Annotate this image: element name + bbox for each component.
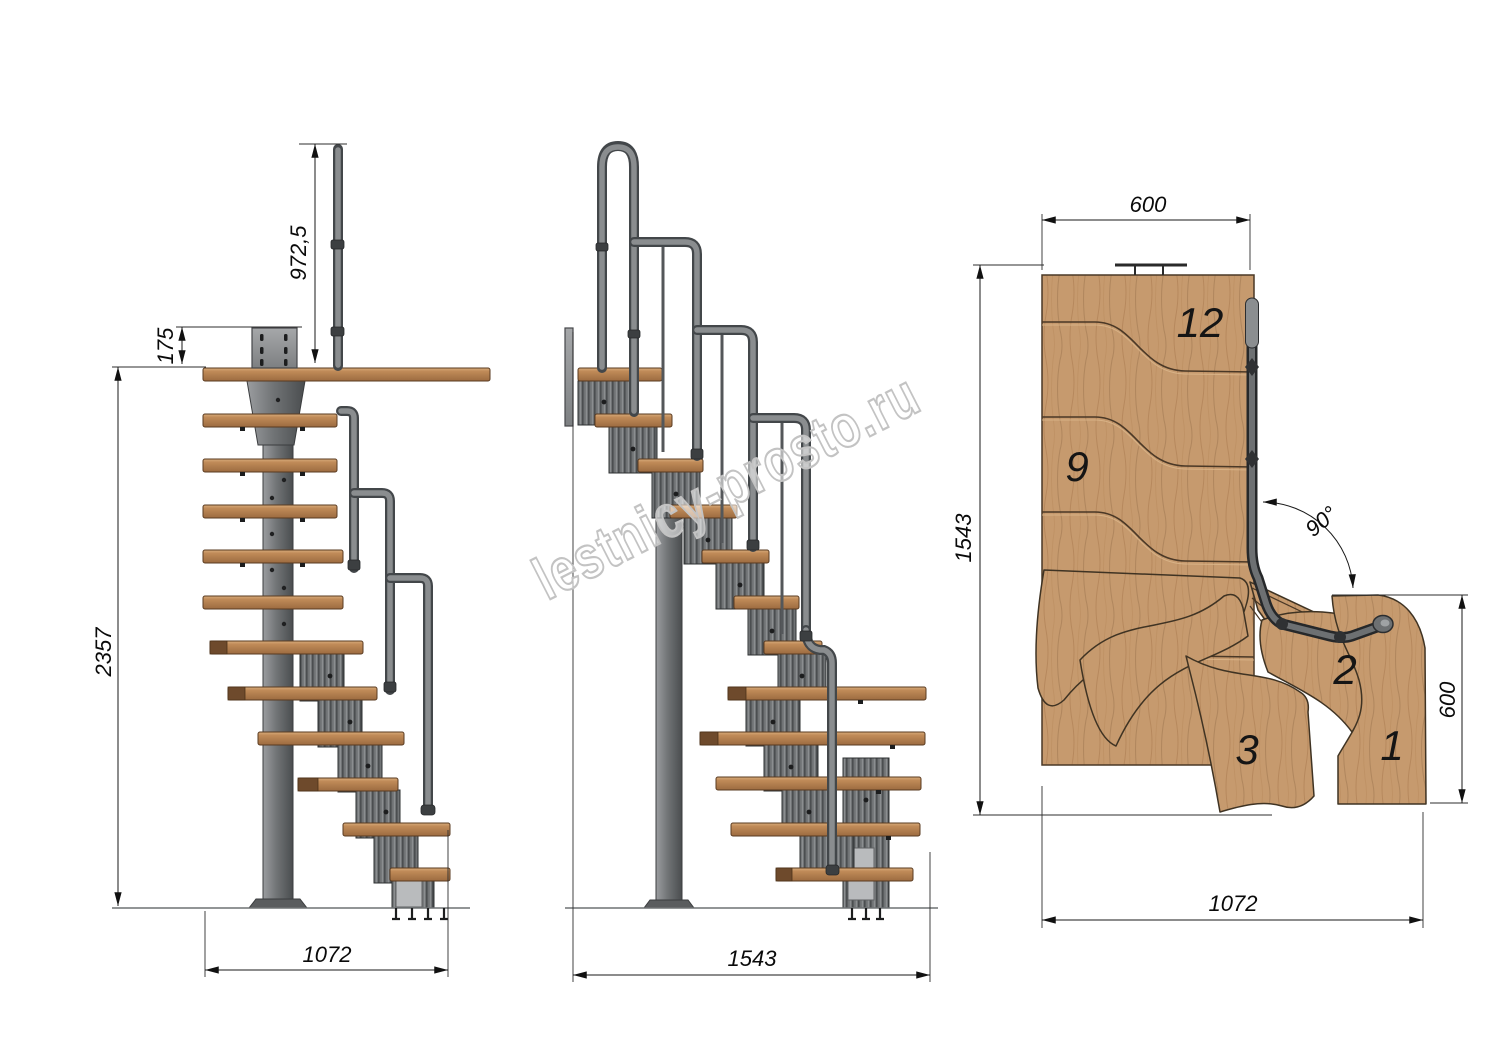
winder-treads bbox=[1036, 570, 1426, 812]
tread-number-1: 1 bbox=[1380, 722, 1403, 769]
dimension-label-turn-angle: 90° bbox=[1300, 501, 1342, 542]
dimension-plan-top-width: 600 bbox=[1042, 192, 1250, 270]
staircase-drawing-canvas: 972,5 175 2357 1072 bbox=[0, 0, 1500, 1061]
rail-joint bbox=[331, 240, 344, 249]
dimension-label-side-footprint: 1072 bbox=[303, 942, 352, 967]
tread-number-3: 3 bbox=[1235, 726, 1258, 773]
plan-handrail bbox=[1245, 298, 1393, 643]
side-elevation-view: 972,5 175 2357 1072 bbox=[91, 144, 490, 977]
side-treads bbox=[203, 368, 490, 881]
tread-11-side bbox=[203, 414, 337, 427]
support-column bbox=[656, 516, 682, 908]
dimension-label-plan-bottom-width: 1072 bbox=[1209, 891, 1258, 916]
tread-1-side bbox=[390, 868, 450, 881]
dimension-total-height: 2357 bbox=[91, 367, 206, 906]
tread-number-9: 9 bbox=[1065, 443, 1088, 490]
tread-number-12: 12 bbox=[1177, 299, 1224, 346]
anchor-bolts-front bbox=[848, 908, 884, 919]
wall-plate-edge bbox=[565, 328, 573, 426]
dimension-label-total-height: 2357 bbox=[91, 627, 116, 678]
technical-drawing: 972,5 175 2357 1072 bbox=[0, 0, 1500, 1061]
dimension-label-front-footprint: 1543 bbox=[728, 946, 778, 971]
plan-view: 12 9 3 2 1 600 1543 600 bbox=[951, 192, 1468, 928]
tread-5-side bbox=[228, 687, 377, 700]
dimension-label-plan-right-width: 600 bbox=[1435, 681, 1460, 718]
plan-wall-bracket bbox=[1115, 265, 1187, 275]
dimension-label-plate-offset: 175 bbox=[153, 327, 178, 364]
front-elevation-view: 1543 bbox=[565, 146, 938, 982]
dimension-label-rail-height: 972,5 bbox=[286, 225, 311, 281]
dimension-label-plan-top-width: 600 bbox=[1130, 192, 1167, 217]
tread-2-side bbox=[343, 823, 450, 836]
dimension-label-plan-length: 1543 bbox=[951, 513, 976, 563]
tread-9-side bbox=[203, 505, 337, 518]
column-base bbox=[249, 899, 307, 908]
rail-joint bbox=[331, 327, 344, 336]
tread-7-side bbox=[203, 596, 343, 609]
tread-6-side bbox=[210, 641, 363, 654]
tread-4-side bbox=[258, 732, 404, 745]
tread-10-side bbox=[203, 459, 337, 472]
column-head-taper bbox=[247, 381, 305, 445]
mounting-plate bbox=[252, 328, 297, 368]
tread-8-side bbox=[203, 550, 343, 563]
tread-12-side bbox=[203, 368, 490, 381]
tread-number-2: 2 bbox=[1332, 646, 1356, 693]
dimension-turn-angle: 90° bbox=[1263, 501, 1353, 588]
rail-end-post bbox=[1246, 298, 1259, 348]
anchor-bolts-side bbox=[392, 908, 448, 919]
